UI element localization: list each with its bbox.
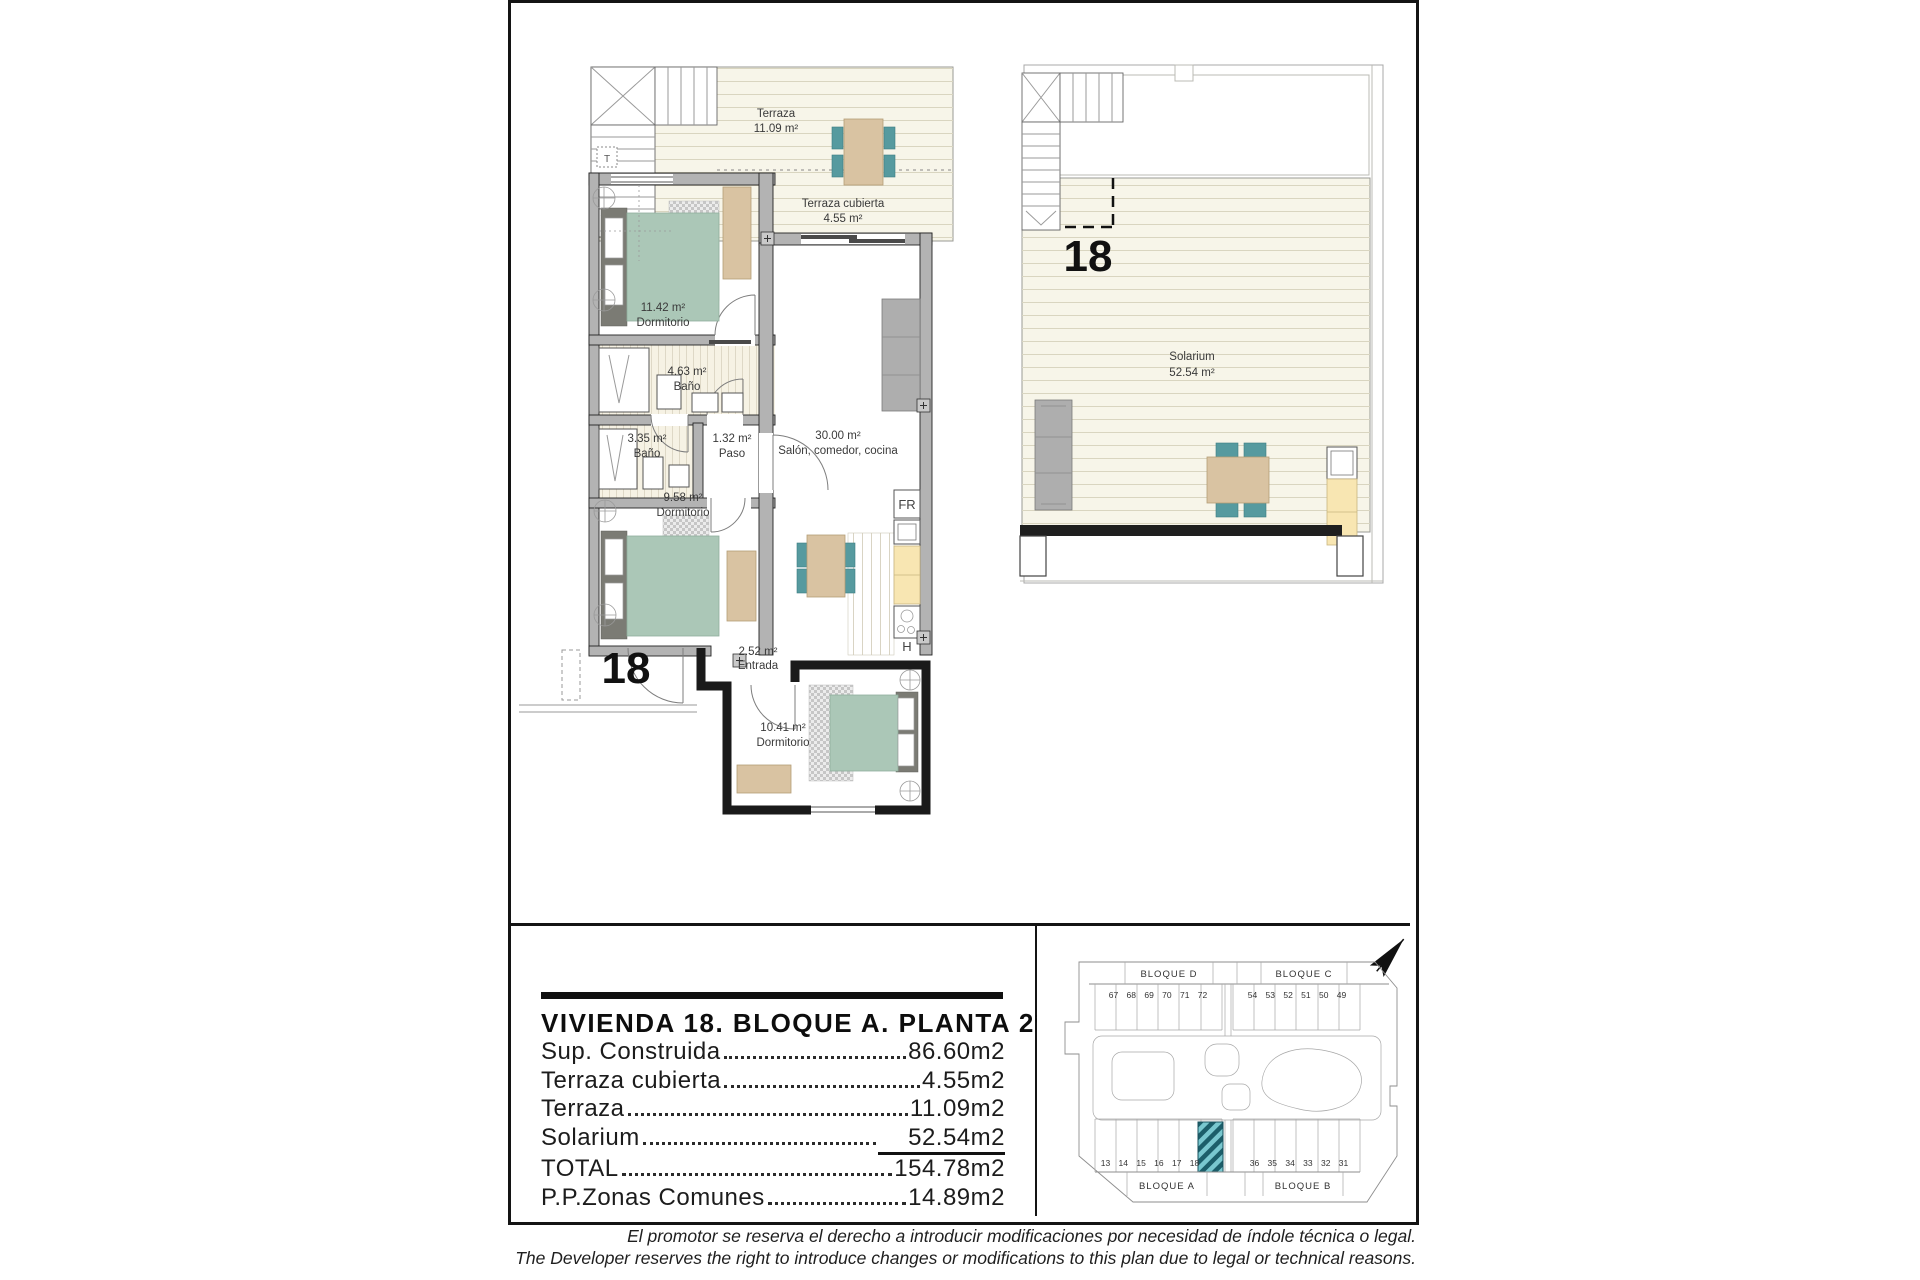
area-label: P.P.Zonas Comunes	[541, 1184, 765, 1213]
paso-area: 1.32 m²	[713, 433, 752, 445]
dormitorio1-area: 11.42 m²	[641, 302, 686, 314]
area-label: TOTAL	[541, 1155, 619, 1184]
solarium-name: Solarium	[1169, 351, 1214, 363]
area-row: TOTAL154.78m2	[541, 1155, 1005, 1184]
terraza-area: 11.09 m²	[754, 123, 799, 135]
area-row: Sup. Construida86.60m2	[541, 1038, 1005, 1067]
bloque-c-label: BLOQUE C	[1275, 969, 1332, 980]
area-label: Solarium	[541, 1124, 640, 1153]
apartment-plan: T	[519, 67, 953, 815]
area-row: Solarium52.54m2	[541, 1124, 1005, 1156]
dormitorio2-area: 9.58 m²	[664, 492, 703, 504]
site-plan-drawing: BLOQUE D BLOQUE C 67 68 69 70 71 72 54 5…	[1037, 926, 1410, 1216]
site-garden	[1093, 1036, 1381, 1120]
bloque-a-units: 13 14 15 16 17 18	[1101, 1158, 1200, 1168]
plan-sheet-frame: T	[508, 0, 1419, 1225]
bloque-b-units: 36 35 34 33 32 31	[1250, 1158, 1349, 1168]
area-value: 4.55m2	[922, 1067, 1005, 1096]
terraza-cubierta-area: 4.55 m²	[824, 213, 863, 225]
entrada-area: 2.52 m²	[739, 646, 778, 658]
area-row: P.P.Zonas Comunes14.89m2	[541, 1184, 1005, 1213]
area-label: Sup. Construida	[541, 1038, 721, 1067]
fridge-label: FR	[898, 497, 915, 512]
dot-leader	[724, 1056, 906, 1059]
area-label: Terraza	[541, 1095, 625, 1124]
bano2-area: 3.35 m²	[628, 433, 667, 445]
bloque-b-label: BLOQUE B	[1275, 1181, 1332, 1192]
site-top-units: 67 68 69 70 71 72 54 53 52 51 50 49	[1095, 984, 1360, 1030]
plan-title: VIVIENDA 18. BLOQUE A. PLANTA 2ª	[541, 1008, 1021, 1039]
disclaimer: El promotor se reserva el derecho a intr…	[456, 1226, 1416, 1269]
entrada-name: Entrada	[738, 660, 779, 672]
solarium-area: 52.54 m²	[1169, 367, 1215, 379]
dormitorio3-name: Dormitorio	[756, 737, 809, 749]
unit-number-solarium: 18	[1064, 232, 1113, 281]
area-row: Terraza cubierta4.55m2	[541, 1067, 1005, 1096]
bedroom2-furniture	[594, 500, 756, 639]
storage-label: T	[604, 154, 610, 165]
salon-area: 30.00 m²	[815, 430, 861, 442]
area-table-panel: VIVIENDA 18. BLOQUE A. PLANTA 2ª Sup. Co…	[511, 926, 1037, 1216]
dot-leader	[628, 1113, 908, 1116]
bano1-name: Baño	[674, 381, 701, 393]
terraza-cubierta-name: Terraza cubierta	[802, 198, 885, 210]
area-value: 11.09m2	[910, 1095, 1005, 1124]
unit-number-floorplan: 18	[602, 644, 651, 693]
dormitorio2-name: Dormitorio	[656, 507, 709, 519]
dot-leader	[724, 1085, 920, 1088]
north-arrow-icon	[1370, 933, 1410, 977]
paso-name: Paso	[719, 448, 745, 460]
area-value: 154.78m2	[894, 1155, 1005, 1184]
terraza-name: Terraza	[757, 108, 796, 120]
dot-leader	[643, 1142, 876, 1145]
area-label: Terraza cubierta	[541, 1067, 721, 1096]
site-bottom-units: 13 14 15 16 17 18 36 35 34 33 32 31	[1095, 1119, 1360, 1172]
solarium-plan: 18 Solarium	[1020, 65, 1383, 583]
area-table: Sup. Construida86.60m2 Terraza cubierta4…	[541, 1038, 1005, 1213]
dormitorio3-area: 10.41 m²	[760, 722, 806, 734]
site-bottom-band: BLOQUE A BLOQUE B	[1095, 1172, 1360, 1196]
site-passage	[1225, 984, 1231, 1172]
bano2-name: Baño	[634, 448, 661, 460]
dot-leader	[768, 1202, 906, 1205]
area-row: Terraza11.09m2	[541, 1095, 1005, 1124]
highlighted-unit-18	[1198, 1122, 1223, 1172]
salon-name: Salón, comedor, cocina	[778, 445, 898, 457]
area-value: 52.54m2	[878, 1124, 1005, 1156]
title-rule	[541, 992, 1003, 999]
disclaimer-en: The Developer reserves the right to intr…	[456, 1248, 1416, 1270]
disclaimer-es: El promotor se reserva el derecho a intr…	[456, 1226, 1416, 1248]
area-value: 86.60m2	[908, 1038, 1005, 1067]
floor-plans-drawing: T	[511, 3, 1410, 923]
site-plan-panel: BLOQUE D BLOQUE C 67 68 69 70 71 72 54 5…	[1037, 926, 1410, 1216]
dormitorio1-name: Dormitorio	[636, 317, 689, 329]
bloque-c-units: 54 53 52 51 50 49	[1248, 990, 1347, 1000]
bloque-a-label: BLOQUE A	[1139, 1181, 1195, 1192]
bedroom3-furniture	[737, 670, 920, 801]
hob-label: H	[902, 639, 911, 654]
site-top-band: BLOQUE D BLOQUE C	[1089, 962, 1389, 984]
dot-leader	[622, 1173, 893, 1176]
bloque-d-label: BLOQUE D	[1140, 969, 1197, 980]
bano1-area: 4.63 m²	[668, 366, 707, 378]
area-value: 14.89m2	[908, 1184, 1005, 1213]
bloque-d-units: 67 68 69 70 71 72	[1109, 990, 1208, 1000]
